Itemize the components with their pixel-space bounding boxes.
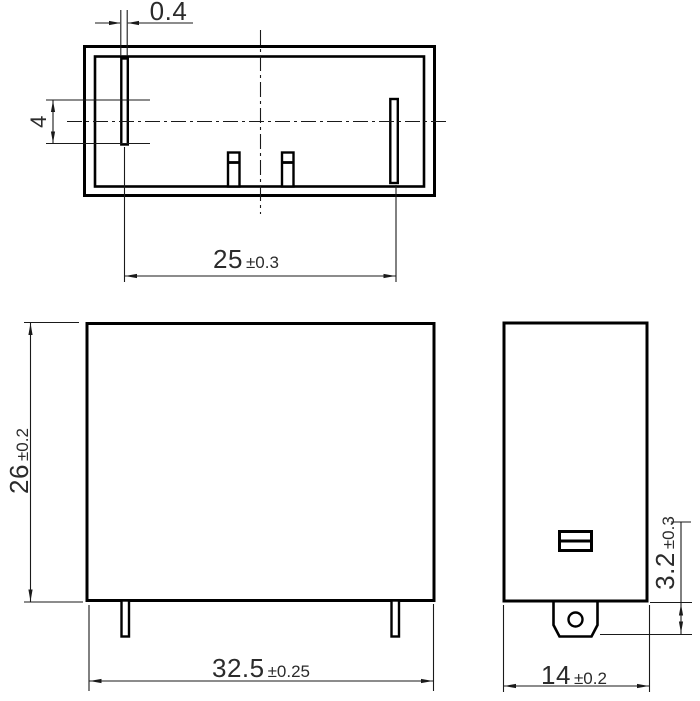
front-view	[24, 323, 434, 692]
terminal-tab	[554, 602, 598, 637]
dim-value: 26	[5, 464, 33, 494]
center-pin-slot-2	[281, 153, 295, 187]
front-view-body	[87, 324, 434, 601]
center-pin-slot-1	[227, 153, 241, 187]
dim-tolerance: ±0.3	[246, 249, 279, 277]
dim-value: 3.2	[651, 552, 679, 590]
dim-value: 0.4	[150, 0, 188, 25]
dim-body-width-label: 14±0.2	[474, 661, 674, 689]
front-left-pin	[122, 601, 130, 637]
dim-tolerance: ±0.2	[574, 665, 607, 693]
left-pin-slot	[121, 59, 128, 145]
dim-body-length-label: 32.5±0.25	[161, 654, 361, 682]
side-view-body	[504, 323, 647, 601]
dim-tolerance: ±0.3	[655, 516, 683, 549]
top-view	[46, 10, 449, 282]
dim-tolerance: ±0.25	[268, 658, 310, 686]
dim-tolerance: ±0.2	[9, 428, 37, 461]
dim-value: 4	[25, 115, 53, 128]
dim-slot-offset-label: 4	[25, 90, 53, 150]
dim-value: 32.5	[212, 654, 265, 682]
side-slot	[558, 532, 593, 551]
dim-value: 14	[541, 661, 571, 689]
front-right-pin	[392, 601, 400, 637]
drawing-linework	[0, 0, 700, 701]
dim-pin-pitch-label: 25±0.3	[146, 245, 346, 273]
tab-hole	[569, 613, 583, 627]
dim-tab-length-label: 3.2±0.3	[651, 473, 679, 633]
dim-slot-width-label: 0.4	[120, 0, 220, 25]
right-pin-slot	[390, 99, 398, 183]
technical-drawing: 0.4 4 25±0.3 26±0.2 32.5±0.25 3.2±0.3 14…	[0, 0, 700, 701]
dim-value: 25	[213, 245, 243, 273]
dim-body-height-label: 26±0.2	[5, 381, 33, 541]
